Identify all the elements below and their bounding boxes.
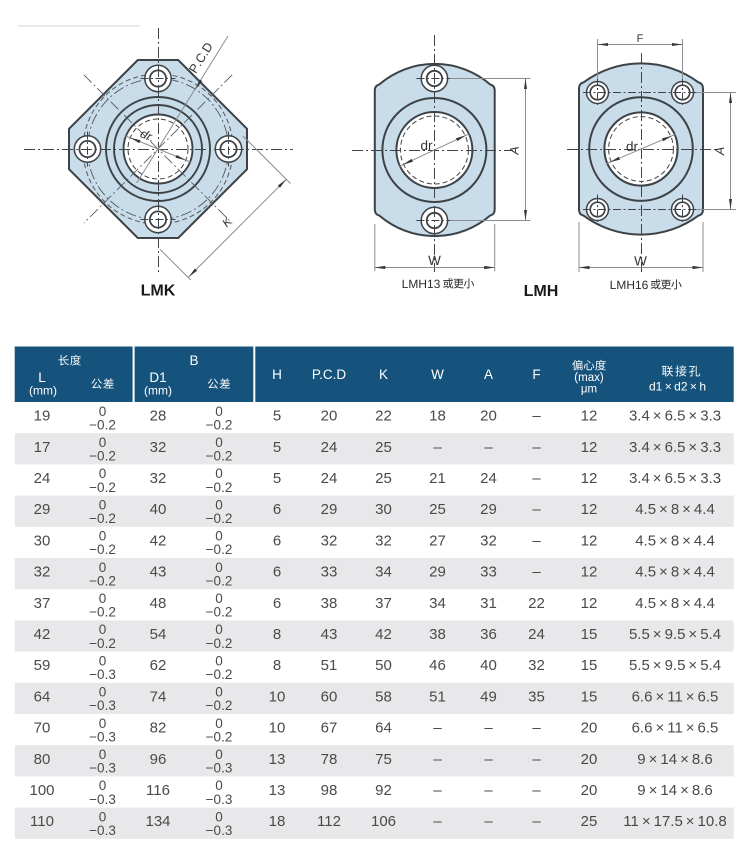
svg-text:100: 100 [29, 782, 54, 799]
svg-text:12: 12 [581, 501, 598, 518]
svg-text:–: – [484, 782, 493, 799]
svg-text:−0.3: −0.3 [89, 729, 116, 744]
svg-text:−0.2: −0.2 [206, 729, 233, 744]
svg-text:24: 24 [528, 626, 545, 643]
svg-text:34: 34 [429, 595, 446, 612]
svg-text:K: K [379, 367, 388, 382]
svg-text:33: 33 [480, 564, 497, 581]
svg-text:62: 62 [150, 657, 167, 674]
svg-text:80: 80 [34, 751, 51, 768]
svg-text:F: F [532, 367, 540, 382]
svg-text:34: 34 [375, 564, 392, 581]
svg-text:92: 92 [375, 782, 392, 799]
svg-text:32: 32 [321, 532, 338, 549]
svg-text:32: 32 [34, 564, 51, 581]
svg-text:50: 50 [375, 657, 392, 674]
svg-text:40: 40 [480, 657, 497, 674]
svg-text:40: 40 [150, 501, 167, 518]
svg-text:49: 49 [480, 688, 497, 705]
svg-text:28: 28 [150, 408, 167, 425]
svg-text:11 × 17.5 × 10.8: 11 × 17.5 × 10.8 [623, 813, 727, 830]
svg-text:–: – [532, 782, 541, 799]
svg-text:82: 82 [150, 720, 167, 737]
svg-text:A: A [484, 367, 493, 382]
svg-text:25: 25 [375, 439, 392, 456]
svg-text:–: – [532, 501, 541, 518]
svg-text:116: 116 [146, 782, 170, 799]
svg-text:4.5 × 8 × 4.4: 4.5 × 8 × 4.4 [635, 564, 715, 581]
svg-text:29: 29 [480, 501, 497, 518]
svg-text:–: – [484, 439, 493, 456]
svg-text:−0.3: −0.3 [206, 761, 233, 776]
svg-text:15: 15 [581, 657, 598, 674]
svg-text:110: 110 [30, 813, 54, 830]
svg-text:98: 98 [321, 782, 338, 799]
svg-text:32: 32 [150, 470, 167, 487]
svg-text:35: 35 [528, 688, 545, 705]
svg-text:29: 29 [34, 501, 51, 518]
svg-text:106: 106 [371, 813, 396, 830]
svg-text:4.5 × 8 × 4.4: 4.5 × 8 × 4.4 [635, 501, 715, 518]
svg-text:−0.3: −0.3 [206, 792, 233, 807]
svg-text:−0.3: −0.3 [89, 823, 116, 838]
svg-text:51: 51 [321, 657, 338, 674]
svg-text:27: 27 [429, 532, 446, 549]
svg-text:6.6 × 11 × 6.5: 6.6 × 11 × 6.5 [632, 720, 719, 737]
svg-text:37: 37 [375, 595, 392, 612]
svg-text:–: – [532, 720, 541, 737]
svg-text:15: 15 [581, 626, 598, 643]
svg-text:30: 30 [34, 532, 51, 549]
svg-text:36: 36 [480, 626, 497, 643]
svg-text:74: 74 [150, 688, 167, 705]
svg-text:38: 38 [321, 595, 338, 612]
svg-text:5.5 × 9.5 × 5.4: 5.5 × 9.5 × 5.4 [629, 626, 721, 643]
svg-text:−0.2: −0.2 [89, 417, 116, 432]
svg-text:12: 12 [581, 595, 598, 612]
svg-text:10: 10 [269, 720, 286, 737]
svg-text:H: H [272, 367, 282, 382]
svg-text:43: 43 [321, 626, 338, 643]
svg-text:22: 22 [528, 595, 545, 612]
svg-text:−0.2: −0.2 [89, 573, 116, 588]
svg-text:5.5 × 9.5 × 5.4: 5.5 × 9.5 × 5.4 [629, 657, 721, 674]
svg-text:−0.3: −0.3 [89, 761, 116, 776]
svg-text:29: 29 [321, 501, 338, 518]
svg-text:−0.2: −0.2 [206, 698, 233, 713]
svg-text:32: 32 [480, 532, 497, 549]
svg-text:–: – [532, 751, 541, 768]
svg-text:30: 30 [375, 501, 392, 518]
svg-text:−0.2: −0.2 [206, 449, 233, 464]
svg-text:46: 46 [429, 657, 446, 674]
svg-text:–: – [484, 813, 493, 830]
svg-text:−0.2: −0.2 [89, 511, 116, 526]
svg-text:25: 25 [429, 501, 446, 518]
svg-text:13: 13 [269, 751, 286, 768]
svg-text:25: 25 [375, 470, 392, 487]
svg-text:6: 6 [273, 595, 281, 612]
svg-text:29: 29 [429, 564, 446, 581]
svg-text:22: 22 [375, 408, 392, 425]
svg-text:64: 64 [34, 688, 51, 705]
svg-text:−0.2: −0.2 [206, 417, 233, 432]
svg-text:48: 48 [150, 595, 167, 612]
svg-text:–: – [532, 470, 541, 487]
svg-text:−0.2: −0.2 [89, 636, 116, 651]
svg-text:134: 134 [145, 813, 170, 830]
svg-text:24: 24 [34, 470, 51, 487]
svg-text:–: – [484, 751, 493, 768]
svg-text:42: 42 [150, 532, 167, 549]
svg-text:(mm): (mm) [29, 384, 57, 398]
svg-text:12: 12 [581, 532, 598, 549]
svg-text:70: 70 [34, 720, 51, 737]
svg-text:−0.3: −0.3 [89, 792, 116, 807]
svg-text:12: 12 [581, 564, 598, 581]
svg-text:21: 21 [429, 470, 446, 487]
svg-text:−0.2: −0.2 [89, 605, 116, 620]
svg-text:−0.2: −0.2 [206, 480, 233, 495]
svg-text:−0.2: −0.2 [206, 605, 233, 620]
svg-text:−0.2: −0.2 [206, 667, 233, 682]
svg-text:(mm): (mm) [144, 384, 172, 398]
svg-text:19: 19 [34, 408, 51, 425]
svg-text:6: 6 [273, 532, 281, 549]
svg-text:−0.3: −0.3 [206, 823, 233, 838]
svg-text:9 × 14 × 8.6: 9 × 14 × 8.6 [637, 751, 712, 768]
svg-text:20: 20 [581, 782, 598, 799]
svg-text:−0.3: −0.3 [89, 698, 116, 713]
svg-text:20: 20 [581, 751, 598, 768]
svg-text:P.C.D: P.C.D [312, 367, 347, 382]
svg-text:3.4 × 6.5 × 3.3: 3.4 × 6.5 × 3.3 [629, 439, 721, 456]
svg-text:42: 42 [34, 626, 51, 643]
svg-text:58: 58 [375, 688, 392, 705]
svg-text:–: – [433, 751, 442, 768]
svg-text:–: – [433, 782, 442, 799]
svg-text:−0.2: −0.2 [206, 573, 233, 588]
svg-text:–: – [532, 408, 541, 425]
svg-text:4.5 × 8 × 4.4: 4.5 × 8 × 4.4 [635, 532, 715, 549]
svg-text:64: 64 [375, 720, 392, 737]
svg-text:25: 25 [581, 813, 598, 830]
svg-text:5: 5 [273, 439, 281, 456]
svg-text:8: 8 [273, 626, 281, 643]
svg-text:−0.3: −0.3 [89, 667, 116, 682]
svg-text:18: 18 [269, 813, 286, 830]
svg-text:24: 24 [480, 470, 497, 487]
svg-text:3.4 × 6.5 × 3.3: 3.4 × 6.5 × 3.3 [629, 470, 721, 487]
svg-text:20: 20 [321, 408, 338, 425]
svg-text:–: – [433, 720, 442, 737]
svg-text:12: 12 [581, 408, 598, 425]
svg-text:10: 10 [269, 688, 286, 705]
svg-text:5: 5 [273, 408, 281, 425]
svg-text:43: 43 [150, 564, 167, 581]
svg-text:μm: μm [581, 384, 597, 396]
svg-text:6: 6 [273, 501, 281, 518]
svg-text:20: 20 [480, 408, 497, 425]
svg-text:32: 32 [375, 532, 392, 549]
svg-text:5: 5 [273, 470, 281, 487]
svg-text:17: 17 [34, 439, 51, 456]
svg-text:15: 15 [581, 688, 598, 705]
svg-text:B: B [189, 353, 198, 368]
svg-text:67: 67 [321, 720, 338, 737]
svg-text:−0.2: −0.2 [206, 511, 233, 526]
svg-text:78: 78 [321, 751, 338, 768]
svg-text:W: W [431, 367, 444, 382]
svg-text:–: – [433, 813, 442, 830]
svg-text:33: 33 [321, 564, 338, 581]
svg-text:18: 18 [429, 408, 446, 425]
svg-text:–: – [532, 564, 541, 581]
svg-text:−0.2: −0.2 [89, 449, 116, 464]
svg-text:d1 × d2 × h: d1 × d2 × h [649, 380, 706, 394]
svg-text:24: 24 [321, 470, 338, 487]
svg-text:–: – [532, 532, 541, 549]
svg-text:–: – [532, 813, 541, 830]
svg-text:3.4 × 6.5 × 3.3: 3.4 × 6.5 × 3.3 [629, 408, 721, 425]
svg-text:38: 38 [429, 626, 446, 643]
svg-text:(max): (max) [574, 372, 604, 384]
svg-text:75: 75 [375, 751, 392, 768]
svg-text:42: 42 [375, 626, 392, 643]
svg-text:60: 60 [321, 688, 338, 705]
svg-text:32: 32 [528, 657, 545, 674]
svg-text:–: – [532, 439, 541, 456]
svg-text:6: 6 [273, 564, 281, 581]
svg-text:59: 59 [34, 657, 51, 674]
svg-text:32: 32 [150, 439, 167, 456]
svg-text:−0.2: −0.2 [89, 542, 116, 557]
svg-text:20: 20 [581, 720, 598, 737]
svg-text:−0.2: −0.2 [206, 636, 233, 651]
svg-text:24: 24 [321, 439, 338, 456]
svg-text:9 × 14 × 8.6: 9 × 14 × 8.6 [637, 782, 712, 799]
svg-text:112: 112 [317, 813, 341, 830]
svg-text:31: 31 [480, 595, 497, 612]
svg-text:13: 13 [269, 782, 286, 799]
svg-text:37: 37 [34, 595, 51, 612]
svg-text:−0.2: −0.2 [206, 542, 233, 557]
svg-text:6.6 × 11 × 6.5: 6.6 × 11 × 6.5 [632, 688, 719, 705]
svg-text:–: – [484, 720, 493, 737]
svg-text:–: – [433, 439, 442, 456]
svg-text:8: 8 [273, 657, 281, 674]
svg-text:54: 54 [150, 626, 167, 643]
svg-text:4.5 × 8 × 4.4: 4.5 × 8 × 4.4 [635, 595, 715, 612]
svg-text:51: 51 [429, 688, 446, 705]
svg-text:96: 96 [150, 751, 167, 768]
svg-text:−0.2: −0.2 [89, 480, 116, 495]
svg-text:12: 12 [581, 470, 598, 487]
svg-text:12: 12 [581, 439, 598, 456]
